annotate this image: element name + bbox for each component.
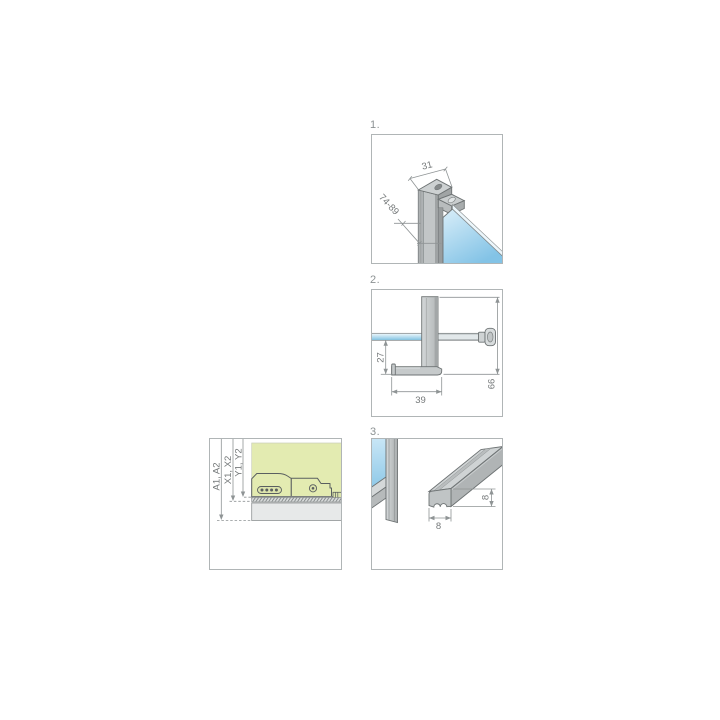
dim-39-label: 39 xyxy=(415,395,426,406)
end-fitting xyxy=(479,328,496,345)
dimension-foot-39: 39 xyxy=(392,377,442,406)
dim-74-89-label: 74-89 xyxy=(376,192,401,217)
adjustment-drawing: A1, A2 X1, X2 Y1, Y2 xyxy=(209,438,342,570)
step-2-label: 2. xyxy=(370,274,380,286)
step-1-drawing: 31 74-89 xyxy=(371,134,503,264)
glass-panel xyxy=(443,205,503,265)
step-2-drawing: 27 39 66 xyxy=(371,289,503,417)
dim-y-label: Y1, Y2 xyxy=(234,448,245,476)
dim-8w-label: 8 xyxy=(436,521,441,532)
dim-a-label: A1, A2 xyxy=(212,463,223,491)
seal-cross-section xyxy=(429,489,451,508)
dim-27-label: 27 xyxy=(375,352,386,363)
step-1-label: 1. xyxy=(370,119,380,131)
door-frame-profile xyxy=(386,439,398,523)
dim-x-label: X1, X2 xyxy=(223,456,234,485)
dim-8h-label: 8 xyxy=(481,495,492,500)
instruction-sheet: 1. xyxy=(0,0,720,720)
door-corner xyxy=(371,439,398,523)
dimension-y1-y2: Y1, Y2 xyxy=(234,439,252,498)
dim-66-label: 66 xyxy=(487,379,498,390)
step-3-label: 3. xyxy=(370,426,380,438)
dimension-seal-width-8: 8 xyxy=(429,508,451,532)
dim-31-label: 31 xyxy=(421,159,434,172)
dimension-drop-27: 27 xyxy=(375,340,391,374)
rail-break-line xyxy=(252,498,342,503)
lower-profile xyxy=(252,503,342,521)
step-3-drawing: 8 8 xyxy=(371,438,503,570)
